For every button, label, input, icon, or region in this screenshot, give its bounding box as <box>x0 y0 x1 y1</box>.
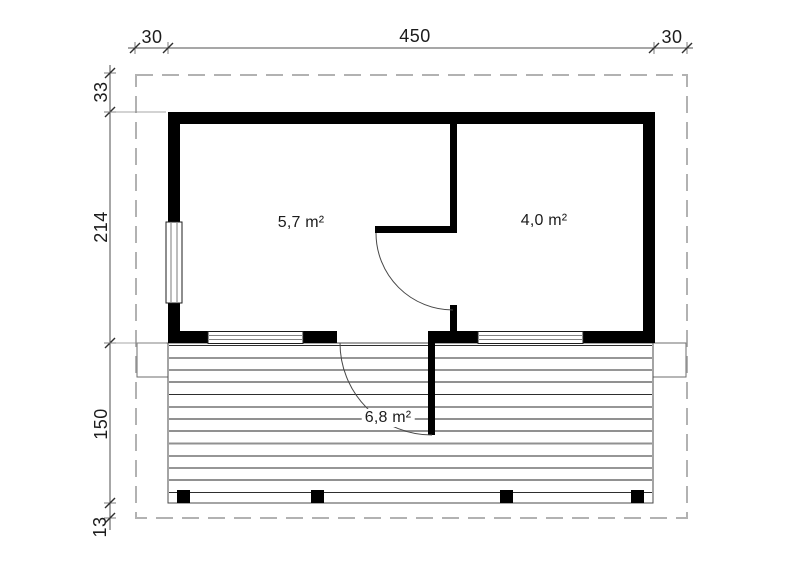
post <box>500 490 513 503</box>
interior-door <box>375 226 457 310</box>
post <box>177 490 190 503</box>
dimension-side-top-offset: 33 <box>92 81 110 102</box>
window-bottom-side-room <box>478 332 583 344</box>
dimension-side-terrace-depth: 150 <box>92 408 110 440</box>
dimension-top-right: 30 <box>661 28 682 46</box>
entrance-door-leaf <box>428 343 435 435</box>
post <box>631 490 644 503</box>
dimension-side-bottom-offset: 13 <box>91 516 109 537</box>
floor-plan: 30 450 30 33 214 150 13 5,7 m² 4,0 m² 6,… <box>0 0 800 566</box>
side-room-area-label: 4,0 m² <box>518 212 571 230</box>
windows <box>166 222 583 344</box>
wall-partition-lower <box>450 305 457 343</box>
wall-top <box>168 112 655 124</box>
right-step <box>653 343 686 377</box>
interior-door-leaf <box>375 226 457 233</box>
wall-partition-upper <box>450 112 457 233</box>
dimension-top-center: 450 <box>399 27 431 45</box>
wall-right <box>643 112 655 343</box>
post <box>311 490 324 503</box>
window-left-wall <box>166 222 182 303</box>
dimension-top-left: 30 <box>141 28 162 46</box>
floor-plan-drawing <box>0 0 800 566</box>
dimension-side-house-depth: 214 <box>92 211 110 243</box>
terrace-area-label: 6,8 m² <box>362 409 415 427</box>
window-bottom-main-room <box>208 332 303 344</box>
interior-door-swing-arc <box>376 233 453 310</box>
main-room-area-label: 5,7 m² <box>275 214 328 232</box>
left-step <box>137 343 168 377</box>
